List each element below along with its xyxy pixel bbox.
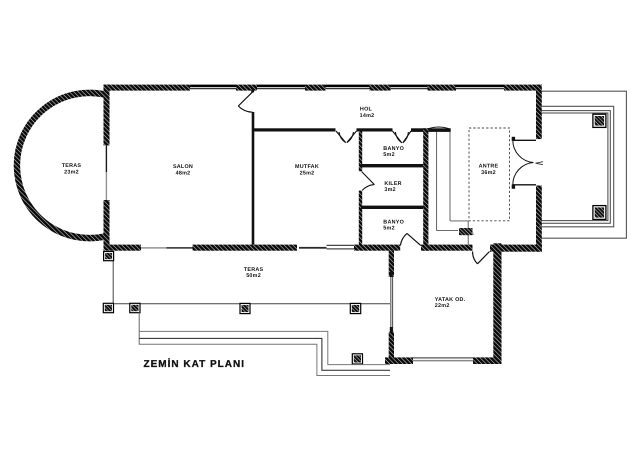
svg-text:50m2: 50m2	[246, 273, 261, 279]
svg-text:ZEMİN KAT PLANI: ZEMİN KAT PLANI	[144, 358, 245, 370]
svg-text:SALON: SALON	[173, 164, 193, 170]
svg-text:36m2: 36m2	[481, 170, 496, 176]
svg-text:23m2: 23m2	[64, 170, 79, 176]
svg-text:HOL: HOL	[360, 107, 373, 113]
svg-text:ANTRE: ANTRE	[479, 164, 499, 170]
svg-text:5m2: 5m2	[383, 226, 395, 232]
svg-text:14m2: 14m2	[360, 113, 375, 119]
svg-text:3m2: 3m2	[384, 187, 396, 193]
svg-text:YATAK OD.: YATAK OD.	[435, 297, 466, 303]
svg-text:5m2: 5m2	[383, 152, 395, 158]
svg-text:48m2: 48m2	[176, 170, 191, 176]
svg-text:KILER: KILER	[384, 181, 401, 187]
svg-text:MUTFAK: MUTFAK	[295, 164, 319, 170]
svg-text:25m2: 25m2	[300, 170, 315, 176]
svg-text:22m2: 22m2	[435, 303, 450, 309]
svg-text:TERAS: TERAS	[244, 267, 264, 273]
svg-text:BANYO: BANYO	[383, 220, 404, 226]
svg-text:TERAS: TERAS	[62, 163, 82, 169]
